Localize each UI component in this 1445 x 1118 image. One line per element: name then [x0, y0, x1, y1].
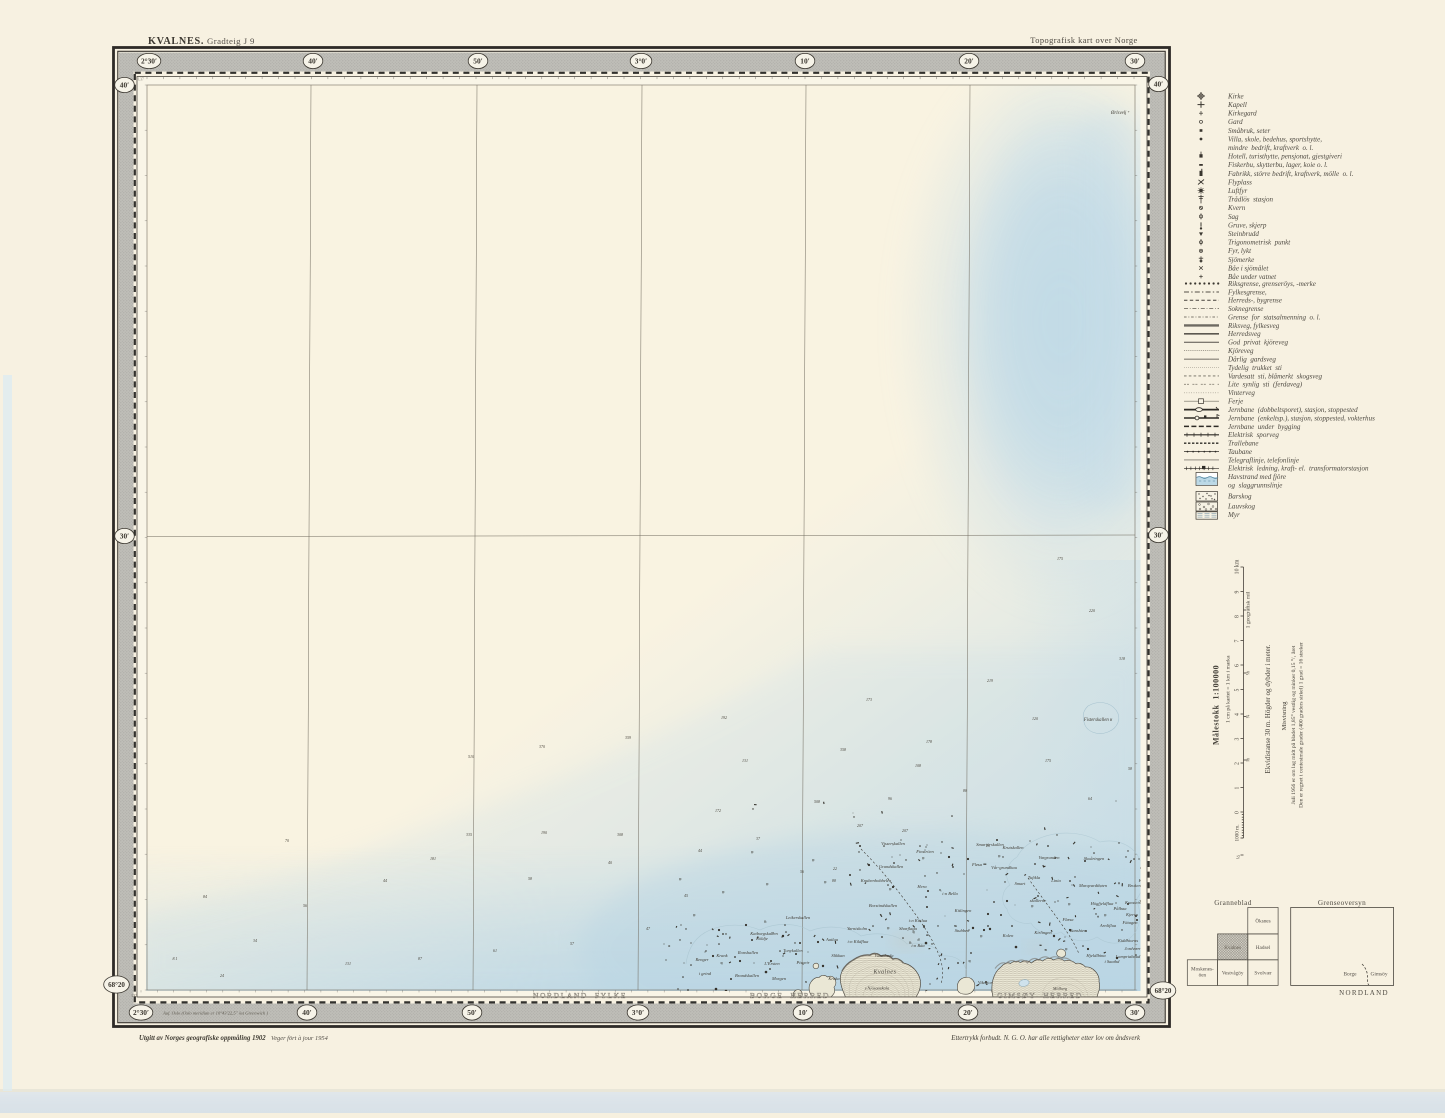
svg-text:Kirkegard: Kirkegard — [1227, 110, 1257, 118]
svg-text:5: 5 — [1235, 688, 1241, 691]
svg-text:24: 24 — [220, 973, 224, 978]
svg-text:Stubben: Stubben — [955, 928, 970, 933]
svg-text:Visserskallen: Visserskallen — [881, 841, 905, 846]
svg-text:Trigonometrisk punkt: Trigonometrisk punkt — [1228, 239, 1291, 247]
svg-text:9: 9 — [1235, 590, 1241, 593]
svg-text:Vinterveg: Vinterveg — [1228, 389, 1255, 397]
svg-text:Gimsöy: Gimsöy — [1370, 972, 1387, 978]
svg-text:44: 44 — [698, 848, 702, 853]
svg-text:Fätagen: Fätagen — [1122, 920, 1139, 925]
svg-text:Målestokk 1:100000: Målestokk 1:100000 — [1212, 665, 1221, 745]
svg-text:20′: 20′ — [964, 57, 973, 66]
svg-text:Fisterskallen ʁ: Fisterskallen ʁ — [1083, 718, 1113, 723]
svg-text:Fabrikk, större bedrift, kraft: Fabrikk, större bedrift, kraftverk, möll… — [1227, 170, 1354, 178]
svg-text:Jernbane (enkeltsp.), stasjon: Jernbane (enkeltsp.), stasjon, stoppeste… — [1228, 414, 1375, 422]
svg-text:30′: 30′ — [1130, 1008, 1139, 1017]
svg-text:ѕ Njösaaskala: ѕ Njösaaskala — [865, 986, 890, 991]
svg-text:Tuftkla: Tuftkla — [1028, 875, 1041, 880]
svg-text:40′: 40′ — [302, 1008, 311, 1017]
svg-text:Kjerru: Kjerru — [1125, 912, 1139, 917]
svg-text:Fyr, lykt: Fyr, lykt — [1227, 247, 1252, 255]
svg-text:Kvern: Kvern — [1227, 204, 1246, 212]
svg-text:Kunstein: Kunstein — [1124, 900, 1142, 905]
svg-text:68°20: 68°20 — [108, 981, 125, 989]
svg-text:Utgitt av Norges geografiske o: Utgitt av Norges geografiske oppmåling 1… — [139, 1035, 266, 1042]
svg-text:10′: 10′ — [800, 57, 809, 66]
svg-text:4: 4 — [1235, 713, 1241, 716]
svg-text:⅛: ⅛ — [1247, 671, 1252, 675]
svg-text:Vår-grundhau: Vår-grundhau — [991, 865, 1017, 870]
svg-text:Gard: Gard — [1228, 118, 1243, 126]
svg-text:Fiskerbu, skytterbu, lager, ko: Fiskerbu, skytterbu, lager, koie o. l. — [1227, 161, 1328, 169]
svg-text:58: 58 — [528, 876, 532, 881]
svg-text:2: 2 — [1235, 762, 1241, 765]
svg-text:Leikerskallen: Leikerskallen — [785, 915, 811, 920]
svg-text:Tonykallen: Tonykallen — [783, 948, 803, 953]
svg-text:220: 220 — [1089, 608, 1095, 613]
svg-text:40′: 40′ — [1154, 80, 1163, 89]
svg-text:172: 172 — [715, 808, 721, 813]
svg-text:Jernbane (dobbeltsporet), sta: Jernbane (dobbeltsporet), stasjon, stopp… — [1228, 406, 1358, 414]
svg-text:Ferje: Ferje — [1227, 398, 1243, 406]
svg-text:Grenseoversyn: Grenseoversyn — [1318, 899, 1366, 907]
svg-text:Vargrunden: Vargrunden — [1038, 855, 1060, 860]
svg-text:Flesa: Flesa — [971, 862, 983, 867]
svg-text:30′: 30′ — [1154, 531, 1163, 540]
svg-text:i Saathd: i Saathd — [1105, 959, 1121, 964]
svg-text:207: 207 — [857, 823, 864, 828]
svg-text:Kvalnes: Kvalnes — [1224, 945, 1241, 951]
svg-text:Grense for statsalmenning o: Grense for statsalmenning o. l. — [1228, 313, 1321, 321]
svg-text:Juli 1956 er om lag midt på bl: Juli 1956 er om lag midt på bladet 1,85°… — [1290, 645, 1297, 804]
svg-text:Gradteig J 9: Gradteig J 9 — [207, 36, 255, 46]
svg-text:Vestvågöy: Vestvågöy — [1222, 970, 1244, 977]
svg-text:56: 56 — [800, 869, 804, 874]
svg-text:Borge: Borge — [1343, 972, 1357, 978]
svg-text:Brandskallen: Brandskallen — [735, 973, 760, 978]
svg-text:2°30′: 2°30′ — [133, 1008, 149, 1017]
svg-text:1000 m.: 1000 m. — [1235, 824, 1241, 841]
svg-text:10 km: 10 km — [1235, 559, 1241, 574]
svg-text:Soknegrense: Soknegrense — [1228, 305, 1263, 313]
svg-text:84: 84 — [203, 894, 207, 899]
svg-text:1: 1 — [1235, 786, 1241, 789]
svg-text:8: 8 — [1235, 615, 1241, 618]
svg-text:Kvalnes: Kvalnes — [873, 970, 897, 976]
svg-text:BORGE HERRED: BORGE HERRED — [750, 991, 830, 1000]
svg-text:Flæsa: Flæsa — [1061, 917, 1074, 922]
svg-text:Barskog: Barskog — [1228, 492, 1252, 500]
svg-text:i:n Kildflua: i:n Kildflua — [848, 939, 870, 944]
svg-text:40′: 40′ — [120, 81, 129, 90]
svg-text:Fylkesgrense,: Fylkesgrense, — [1227, 288, 1267, 296]
svg-text:Tydelig trukket sti: Tydelig trukket sti — [1228, 364, 1282, 372]
svg-text:88: 88 — [832, 878, 836, 883]
svg-text:44: 44 — [383, 878, 387, 883]
svg-text:öen: öen — [1199, 973, 1207, 979]
svg-text:L37: L37 — [138, 78, 144, 82]
svg-text:Skoåringen: Skoåringen — [1084, 856, 1105, 861]
svg-text:Den er regnet i centesimale gr: Den er regnet i centesimale grader (400 … — [1298, 642, 1305, 808]
svg-text:Ronshallen: Ronshallen — [737, 950, 759, 955]
svg-text:20: 20 — [986, 843, 990, 848]
svg-text:318: 318 — [1119, 656, 1125, 661]
svg-text:Ettertrykk forbudt. N. G. O. h: Ettertrykk forbudt. N. G. O. har alle re… — [950, 1035, 1141, 1042]
svg-text:Misvisning: Misvisning — [1281, 701, 1288, 731]
svg-text:Pålbaa: Pålbaa — [1113, 906, 1128, 911]
svg-text:Herredsveg: Herredsveg — [1227, 330, 1261, 338]
svg-text:40′: 40′ — [308, 57, 317, 66]
svg-text:50′: 50′ — [467, 1008, 476, 1017]
svg-text:108: 108 — [915, 763, 921, 768]
svg-text:131: 131 — [345, 961, 351, 966]
svg-text:Smart: Smart — [1015, 881, 1027, 886]
svg-text:Slikkan: Slikkan — [831, 953, 845, 958]
svg-text:Sjömerke: Sjömerke — [1228, 256, 1254, 264]
svg-text:6: 6 — [1235, 664, 1241, 667]
svg-text:Sag: Sag — [1228, 213, 1239, 221]
svg-text:Kolen: Kolen — [1002, 933, 1014, 938]
svg-text:Kraka: Kraka — [827, 976, 840, 981]
svg-text:Yarniskolm: Yarniskolm — [847, 926, 868, 931]
svg-text:i grind: i grind — [699, 971, 712, 976]
svg-text:Borstindskallen: Borstindskallen — [869, 903, 898, 908]
svg-text:Kjöreveg: Kjöreveg — [1227, 347, 1254, 355]
svg-text:358: 358 — [840, 747, 846, 752]
svg-text:Kirlingen: Kirlingen — [1033, 930, 1052, 935]
svg-text:Marqvardthøen: Marqvardthøen — [1078, 883, 1108, 888]
svg-text:Krutskallen: Krutskallen — [1002, 845, 1025, 850]
svg-text:207: 207 — [902, 828, 909, 833]
svg-text:Elektrisk ledning, kraft- el.: Elektrisk ledning, kraft- el. transforma… — [1227, 465, 1369, 473]
svg-text:Vardesatt sti, blåmerkt skog: Vardesatt sti, blåmerkt skogsveg — [1228, 372, 1323, 380]
svg-text:40: 40 — [608, 860, 612, 865]
svg-text:Elektrisk sporveg: Elektrisk sporveg — [1227, 431, 1279, 439]
svg-text:192: 192 — [721, 715, 727, 720]
svg-text:181: 181 — [430, 856, 436, 861]
svg-text:219: 219 — [987, 678, 993, 683]
svg-text:Hadsel: Hadsel — [1256, 945, 1271, 951]
svg-text:56: 56 — [303, 903, 307, 908]
svg-text:22: 22 — [833, 866, 837, 871]
svg-text:Linia: Linia — [1050, 878, 1061, 883]
svg-text:Hotell, turisthytte, pensjonat: Hotell, turisthytte, pensjonat, gjestgiv… — [1227, 153, 1342, 161]
svg-text:Knubenhobbelen: Knubenhobbelen — [860, 878, 892, 883]
svg-text:131: 131 — [742, 758, 748, 763]
svg-text:Riksgrense, grenseröys, -merke: Riksgrense, grenseröys, -merke — [1227, 280, 1316, 288]
svg-text:¼: ¼ — [1247, 714, 1252, 718]
svg-text:1 cm på kartet = 1 km i marka: 1 cm på kartet = 1 km i marka — [1225, 655, 1232, 723]
svg-text:½: ½ — [1235, 855, 1242, 859]
svg-text:skallerne: skallerne — [1030, 898, 1047, 903]
svg-text:Svolvær: Svolvær — [1254, 971, 1272, 977]
svg-text:88: 88 — [963, 788, 967, 793]
svg-text:508: 508 — [814, 799, 820, 804]
svg-text:Flyplass: Flyplass — [1227, 178, 1252, 186]
svg-text:i:n Bella: i:n Bella — [942, 891, 958, 896]
svg-text:Arnliflua: Arnliflua — [1099, 923, 1117, 928]
svg-text:335: 335 — [466, 832, 472, 837]
svg-text:mindre bedrift, kraftverk o.: mindre bedrift, kraftverk o. l. — [1228, 144, 1314, 152]
svg-text:Renger: Renger — [695, 957, 709, 962]
svg-text:34: 34 — [253, 938, 257, 943]
svg-text:Krank: Krank — [715, 953, 728, 958]
svg-text:Telegraflinje, telefonlinje: Telegraflinje, telefonlinje — [1228, 456, 1299, 464]
svg-text:178: 178 — [926, 739, 932, 744]
svg-text:68°20: 68°20 — [1155, 987, 1172, 995]
svg-text:61: 61 — [493, 948, 497, 953]
svg-text:308: 308 — [617, 832, 623, 837]
svg-text:i:n Kittlua: i:n Kittlua — [909, 918, 928, 923]
svg-text:10′: 10′ — [798, 1008, 807, 1017]
svg-text:0: 0 — [1235, 811, 1241, 814]
svg-text:175: 175 — [1045, 758, 1051, 763]
svg-text:God privat kjöreveg: God privat kjöreveg — [1228, 339, 1288, 347]
svg-text:64: 64 — [1088, 796, 1092, 801]
svg-text:Högfjeldflua: Högfjeldflua — [1090, 901, 1114, 906]
svg-text:190: 190 — [541, 830, 547, 835]
svg-text:Lauvskog: Lauvskog — [1227, 502, 1255, 510]
svg-text:7: 7 — [1235, 639, 1241, 642]
svg-text:Trallebane: Trallebane — [1228, 440, 1259, 448]
svg-text:3°0′: 3°0′ — [635, 57, 647, 66]
svg-text:Riksveg, fylkesveg: Riksveg, fylkesveg — [1227, 322, 1280, 330]
svg-text:58: 58 — [1128, 766, 1132, 771]
svg-text:3: 3 — [1235, 737, 1241, 740]
svg-text:2°30′: 2°30′ — [141, 57, 157, 66]
svg-text:175: 175 — [1057, 556, 1063, 561]
svg-text:GIMSØY HERRED: GIMSØY HERRED — [997, 991, 1083, 1000]
svg-text:Kiddhiorns: Kiddhiorns — [1117, 938, 1139, 943]
svg-text:30′: 30′ — [120, 532, 129, 541]
svg-text:Pisgeir: Pisgeir — [796, 960, 810, 965]
svg-text:70: 70 — [285, 838, 289, 843]
svg-text:Grandskallen: Grandskallen — [879, 864, 904, 869]
svg-text:Villa, skole, bedehus, sportsh: Villa, skole, bedehus, sportshytte, — [1228, 135, 1322, 143]
svg-text:3°0′: 3°0′ — [632, 1008, 644, 1017]
svg-text:50′: 50′ — [473, 57, 482, 66]
svg-text:og slaggrunnslinje: og slaggrunnslinje — [1228, 481, 1282, 489]
svg-text:NORDLAND FYLKE: NORDLAND FYLKE — [533, 991, 627, 1000]
svg-text:Röldje: Röldje — [755, 936, 768, 941]
svg-text:Herreds-, bygrense: Herreds-, bygrense — [1227, 297, 1282, 305]
svg-text:Värmbuda: Värmbuda — [875, 953, 895, 958]
svg-text:Hera: Hera — [916, 884, 927, 889]
svg-text:NORDLAND: NORDLAND — [1339, 989, 1389, 997]
svg-text:Sharflaga: Sharflaga — [899, 926, 918, 931]
svg-text:⅜: ⅜ — [1247, 758, 1252, 762]
svg-text:Öksnes: Öksnes — [1255, 918, 1270, 925]
svg-text:96: 96 — [888, 796, 892, 801]
svg-text:Kapell: Kapell — [1227, 101, 1247, 109]
svg-text:Granneblad: Granneblad — [1214, 899, 1252, 907]
svg-text:Kirke: Kirke — [1227, 92, 1244, 100]
svg-text:Topografisk kart over Norge: Topografisk kart over Norge — [1030, 36, 1137, 45]
svg-text:510: 510 — [468, 754, 474, 759]
svg-text:370: 370 — [539, 744, 545, 749]
svg-text:KVALNES.: KVALNES. — [148, 36, 204, 47]
svg-text:Kitlingen: Kitlingen — [954, 908, 972, 913]
svg-text:Veger fört à jour 1954: Veger fört à jour 1954 — [271, 1035, 329, 1042]
svg-text:359: 359 — [625, 735, 631, 740]
svg-text:Steinbrudd: Steinbrudd — [1228, 230, 1259, 238]
svg-text:Luftfyr: Luftfyr — [1227, 187, 1247, 195]
svg-text:20′: 20′ — [963, 1008, 972, 1017]
svg-text:Lite synlig sti (ferdaveg): Lite synlig sti (ferdaveg) — [1227, 381, 1303, 389]
svg-text:120: 120 — [1032, 716, 1038, 721]
svg-text:i:n Bäa: i:n Bäa — [911, 943, 925, 948]
svg-text:Ørlsvelj º: Ørlsvelj º — [1110, 110, 1130, 116]
svg-text:Taubane: Taubane — [1228, 448, 1252, 456]
svg-text:Gruve, skjerp: Gruve, skjerp — [1228, 221, 1267, 229]
svg-text:L'Ersten: L'Ersten — [763, 961, 780, 966]
svg-text:Hjeldlbina: Hjeldlbina — [1085, 953, 1106, 958]
svg-text:Småbruk, seter: Småbruk, seter — [1228, 127, 1271, 135]
svg-text:Aatlua: Aatlua — [825, 937, 839, 942]
svg-text:Havstrand med fjöre: Havstrand med fjöre — [1227, 473, 1286, 481]
svg-text:Morgen: Morgen — [771, 976, 787, 981]
svg-text:30′: 30′ — [1130, 57, 1139, 66]
svg-text:Ekvidistanse 30 m. Högder og d: Ekvidistanse 30 m. Högder og dybder i me… — [1264, 644, 1272, 773]
svg-text:45: 45 — [684, 893, 688, 898]
svg-text:Jernbane under bygging: Jernbane under bygging — [1228, 423, 1301, 431]
svg-text:1 geografisk mil: 1 geografisk mil — [1245, 591, 1252, 628]
svg-text:Smartörskallen: Smartörskallen — [976, 842, 1004, 847]
svg-text:Finströen: Finströen — [915, 849, 934, 854]
svg-text:137: 137 — [131, 993, 137, 998]
svg-text:Båe i sjömålet: Båe i sjömålet — [1228, 264, 1269, 272]
svg-text:8.1: 8.1 — [173, 956, 178, 961]
svg-text:Myr: Myr — [1227, 511, 1240, 519]
svg-text:173: 173 — [866, 697, 872, 702]
svg-text:Banshien: Banshien — [1070, 928, 1087, 933]
svg-text:Dårlig gardsveg: Dårlig gardsveg — [1227, 356, 1276, 364]
svg-text:Trådlös stasjon: Trådlös stasjon — [1228, 196, 1274, 204]
